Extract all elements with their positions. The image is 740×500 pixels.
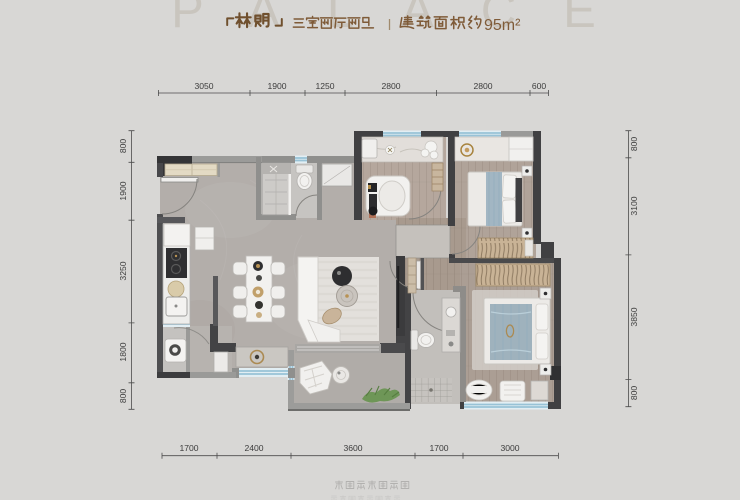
svg-text:800: 800	[629, 137, 639, 152]
svg-text:3600: 3600	[343, 443, 362, 453]
svg-text:95m²: 95m²	[484, 17, 521, 34]
svg-text:1700: 1700	[429, 443, 448, 453]
svg-text:3250: 3250	[118, 261, 128, 280]
svg-text:800: 800	[629, 386, 639, 401]
svg-text:2400: 2400	[244, 443, 263, 453]
svg-text:3100: 3100	[629, 196, 639, 215]
svg-text:800: 800	[118, 139, 128, 154]
svg-text:1900: 1900	[267, 81, 286, 91]
svg-text:1900: 1900	[118, 181, 128, 200]
svg-text:600: 600	[532, 81, 547, 91]
svg-text:2800: 2800	[381, 81, 400, 91]
svg-text:1250: 1250	[315, 81, 334, 91]
svg-text:3050: 3050	[194, 81, 213, 91]
svg-text:1800: 1800	[118, 342, 128, 361]
svg-text:800: 800	[118, 389, 128, 404]
svg-text:3000: 3000	[500, 443, 519, 453]
svg-text:2800: 2800	[473, 81, 492, 91]
svg-text:1700: 1700	[179, 443, 198, 453]
svg-text:3850: 3850	[629, 307, 639, 326]
